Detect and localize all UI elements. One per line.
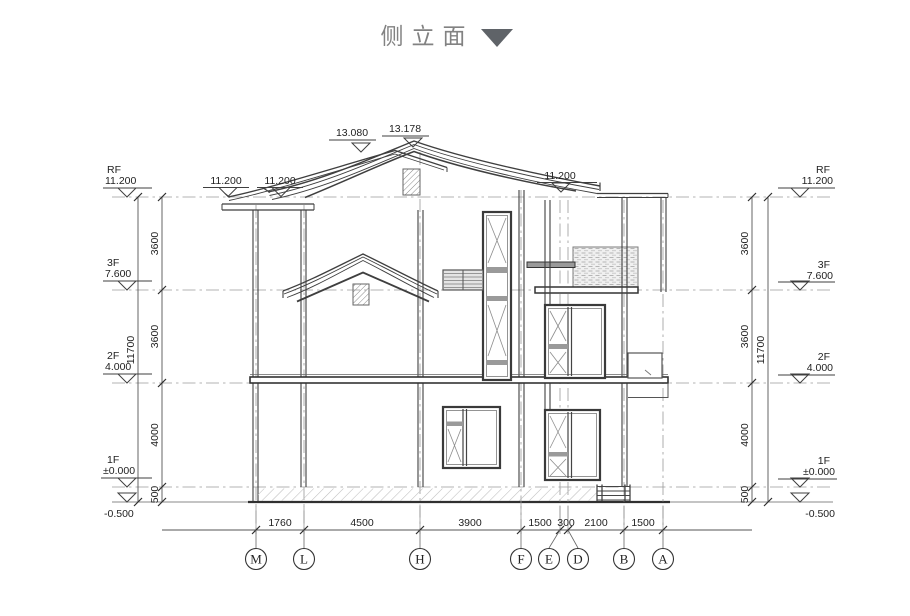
hdim-4500: 4500 bbox=[350, 517, 374, 529]
hdim-300: 300 bbox=[557, 517, 575, 529]
dim-left-4000: 4000 bbox=[149, 423, 161, 447]
gable-vent bbox=[403, 169, 420, 195]
section-header: 侧立面 bbox=[381, 23, 514, 49]
svg-text:11.200: 11.200 bbox=[210, 175, 241, 187]
window-1f-right bbox=[545, 410, 600, 480]
left-dimension-chain: 3600 3600 4000 500 11700 bbox=[125, 193, 166, 506]
level-2f-right: 2F 4.000 bbox=[778, 351, 835, 383]
level-minus-right: -0.500 bbox=[791, 493, 835, 520]
left-eave-slab bbox=[222, 204, 314, 210]
grid-bubble-e: E bbox=[545, 552, 553, 567]
balcony-railing-panel bbox=[573, 247, 638, 287]
dim-left-500: 500 bbox=[149, 486, 161, 504]
svg-text:-0.500: -0.500 bbox=[805, 508, 835, 520]
mark-13080: 13.080 bbox=[329, 127, 376, 152]
grid-bubbles: M L H F E D B A bbox=[246, 530, 674, 570]
lower-gable-vent bbox=[353, 284, 369, 305]
stair-window bbox=[483, 212, 511, 380]
grid-bubble-d: D bbox=[573, 552, 582, 567]
ac-unit-box bbox=[628, 353, 662, 378]
dim-right-3600-a: 3600 bbox=[739, 232, 751, 256]
svg-text:7.600: 7.600 bbox=[807, 270, 833, 282]
level-1f-left: 1F ±0.000 bbox=[101, 454, 152, 487]
svg-text:4.000: 4.000 bbox=[807, 362, 833, 374]
dim-right-11700: 11700 bbox=[755, 336, 767, 365]
drawing-page: 侧立面 bbox=[0, 0, 910, 616]
plinth-hatch bbox=[258, 489, 597, 502]
hdim-1500-b: 1500 bbox=[631, 517, 655, 529]
svg-text:13.080: 13.080 bbox=[336, 127, 368, 139]
balcony-canopy-beam bbox=[527, 262, 575, 268]
hdim-2100: 2100 bbox=[584, 517, 608, 529]
hdim-3900: 3900 bbox=[458, 517, 482, 529]
page-title: 侧立面 bbox=[381, 23, 474, 49]
hdim-1760: 1760 bbox=[268, 517, 292, 529]
svg-text:±0.000: ±0.000 bbox=[103, 465, 135, 477]
dim-right-3600-b: 3600 bbox=[739, 325, 751, 349]
level-minus-left: -0.500 bbox=[104, 493, 136, 520]
dim-left-3600-b: 3600 bbox=[149, 325, 161, 349]
svg-text:4.000: 4.000 bbox=[105, 361, 131, 373]
svg-text:7.600: 7.600 bbox=[105, 268, 131, 280]
grid-bubble-m: M bbox=[250, 552, 262, 567]
svg-text:-0.500: -0.500 bbox=[104, 508, 134, 520]
level-rf-right: RF 11.200 bbox=[778, 164, 835, 197]
mark-eave-right: 11.200 bbox=[537, 170, 597, 192]
collapse-triangle-icon[interactable] bbox=[481, 29, 513, 47]
dim-left-3600-a: 3600 bbox=[149, 232, 161, 256]
louver-panel bbox=[443, 270, 483, 290]
entry-steps bbox=[597, 485, 630, 502]
right-level-markers: RF 11.200 3F 7.600 2F 4.000 1F ±0.000 -0… bbox=[778, 164, 837, 520]
grid-bubble-b: B bbox=[620, 552, 629, 567]
level-1f-right: 1F ±0.000 bbox=[778, 455, 837, 487]
grid-bubble-f: F bbox=[517, 552, 524, 567]
window-2f-right bbox=[545, 305, 605, 378]
level-3f-left: 3F 7.600 bbox=[103, 257, 152, 290]
bottom-dimension-chain: 1760 4500 3900 1500 300 2100 1500 bbox=[162, 506, 752, 534]
svg-text:13.178: 13.178 bbox=[389, 123, 421, 135]
dim-right-4000: 4000 bbox=[739, 423, 751, 447]
right-dimension-chain: 3600 3600 4000 500 11700 bbox=[739, 193, 772, 506]
svg-text:11.200: 11.200 bbox=[544, 170, 575, 182]
grid-bubble-l: L bbox=[300, 552, 308, 567]
hdim-1500-a: 1500 bbox=[528, 517, 552, 529]
grid-bubble-h: H bbox=[415, 552, 424, 567]
level-rf-left: RF 11.200 bbox=[103, 164, 152, 197]
svg-text:11.200: 11.200 bbox=[264, 175, 295, 187]
dim-left-11700: 11700 bbox=[125, 336, 137, 365]
level-3f-right: 3F 7.600 bbox=[778, 259, 835, 290]
side-elevation-drawing: 侧立面 bbox=[0, 0, 910, 616]
grid-bubble-a: A bbox=[658, 552, 668, 567]
svg-text:11.200: 11.200 bbox=[105, 175, 136, 187]
dim-right-500: 500 bbox=[739, 486, 751, 504]
svg-text:±0.000: ±0.000 bbox=[803, 466, 835, 478]
roof-elevation-markers: 13.080 13.178 11.200 11.200 11.200 bbox=[203, 123, 597, 197]
window-1f-left bbox=[443, 407, 500, 468]
svg-text:11.200: 11.200 bbox=[802, 175, 833, 187]
